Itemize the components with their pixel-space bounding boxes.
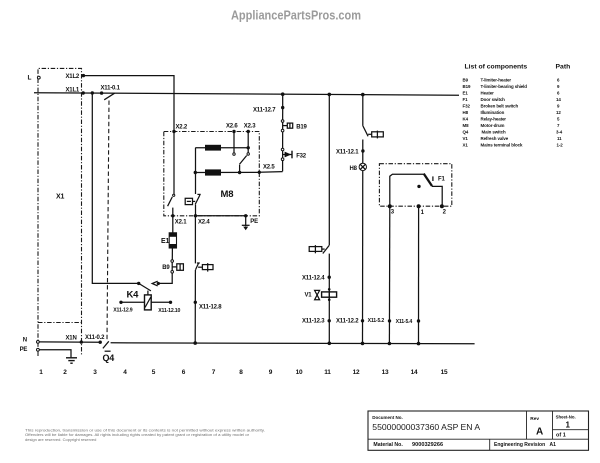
svg-text:T-limiter-heater: T-limiter-heater [481, 77, 512, 82]
svg-text:X11-12.10: X11-12.10 [158, 308, 180, 314]
svg-text:Path: Path [556, 63, 571, 70]
svg-text:1: 1 [39, 369, 43, 376]
svg-text:Illumination: Illumination [481, 110, 505, 115]
svg-text:14: 14 [411, 369, 418, 376]
svg-text:9: 9 [269, 369, 273, 376]
svg-text:X2.3: X2.3 [244, 124, 256, 130]
svg-text:AppliancePartsPros.com: AppliancePartsPros.com [231, 8, 361, 23]
svg-text:1: 1 [566, 420, 571, 429]
svg-text:14: 14 [556, 97, 561, 102]
svg-text:12: 12 [353, 369, 360, 376]
svg-text:X2.2: X2.2 [176, 124, 188, 130]
svg-text:X11-0.1: X11-0.1 [101, 85, 121, 91]
svg-text:Document No.: Document No. [372, 415, 403, 420]
svg-text:X11-12.7: X11-12.7 [253, 107, 276, 113]
svg-text:design are reserved. Copyright: design are reserved. Copyright reserved [25, 437, 96, 442]
svg-text:X11-5.2: X11-5.2 [368, 318, 385, 324]
svg-text:L: L [28, 75, 32, 82]
svg-text:X11-12.9: X11-12.9 [113, 308, 132, 314]
svg-text:A1: A1 [550, 442, 557, 448]
svg-text:X2.1: X2.1 [175, 219, 187, 225]
svg-text:55000000037360 ASP EN A: 55000000037360 ASP EN A [372, 422, 480, 432]
svg-text:X11-12.4: X11-12.4 [302, 276, 325, 282]
svg-text:X11-12.2: X11-12.2 [336, 318, 359, 324]
svg-text:Material No.: Material No. [373, 442, 403, 448]
svg-text:N: N [23, 338, 27, 344]
svg-text:Q4: Q4 [463, 129, 469, 134]
svg-text:V1: V1 [305, 293, 313, 299]
svg-text:PE: PE [250, 219, 258, 225]
svg-text:Q4: Q4 [103, 353, 115, 363]
svg-text:6: 6 [182, 369, 186, 376]
svg-text:T-limiter-bearing shield: T-limiter-bearing shield [481, 84, 528, 89]
svg-text:PE: PE [20, 347, 28, 353]
svg-text:11: 11 [324, 369, 331, 376]
svg-text:5: 5 [152, 369, 156, 376]
svg-text:X1L2: X1L2 [66, 74, 80, 80]
svg-text:4: 4 [123, 369, 127, 376]
svg-text:X1: X1 [56, 193, 64, 200]
svg-text:X11-12.3: X11-12.3 [302, 318, 325, 324]
svg-text:X1N: X1N [66, 335, 77, 341]
svg-text:H8: H8 [463, 110, 469, 115]
svg-text:9000329266: 9000329266 [412, 442, 443, 448]
svg-text:7: 7 [212, 369, 216, 376]
svg-text:3-4: 3-4 [556, 129, 563, 134]
svg-text:F1: F1 [438, 177, 445, 183]
svg-text:Rev: Rev [530, 416, 539, 422]
svg-text:8: 8 [239, 369, 243, 376]
svg-text:X1L1: X1L1 [66, 87, 80, 93]
svg-text:Heater: Heater [481, 90, 495, 95]
svg-text:B9: B9 [162, 265, 170, 271]
svg-text:K4: K4 [127, 290, 140, 301]
svg-text:F1: F1 [463, 97, 469, 102]
svg-text:12: 12 [556, 110, 561, 115]
svg-text:Broken belt switch: Broken belt switch [481, 103, 519, 108]
svg-text:Relay-heater: Relay-heater [481, 116, 507, 121]
svg-text:List of components: List of components [465, 63, 528, 70]
svg-text:V1: V1 [463, 136, 469, 141]
svg-text:X2.6: X2.6 [226, 124, 238, 130]
svg-text:E1: E1 [463, 90, 469, 95]
svg-text:B19: B19 [463, 84, 471, 89]
svg-text:X11-12.1: X11-12.1 [336, 149, 359, 155]
svg-text:Refresh valve: Refresh valve [481, 136, 509, 141]
svg-text:Door switch: Door switch [481, 97, 506, 102]
svg-text:A: A [536, 427, 543, 438]
svg-text:Mains terminal block: Mains terminal block [481, 142, 524, 147]
svg-text:M8: M8 [221, 189, 234, 200]
svg-text:11: 11 [557, 136, 562, 141]
svg-text:Main switch: Main switch [482, 129, 506, 134]
svg-text:X11-5.4: X11-5.4 [396, 319, 413, 325]
svg-text:X2.5: X2.5 [263, 164, 275, 170]
svg-text:Sheet-No.: Sheet-No. [556, 415, 576, 420]
svg-text:H8: H8 [350, 166, 358, 172]
svg-text:1-2: 1-2 [557, 142, 564, 147]
svg-text:X11-0.2: X11-0.2 [85, 335, 105, 341]
svg-text:2: 2 [63, 369, 67, 376]
svg-text:Motor-drum: Motor-drum [481, 123, 505, 128]
svg-text:3: 3 [93, 369, 97, 376]
svg-text:X2.4: X2.4 [198, 219, 210, 225]
svg-text:B19: B19 [296, 124, 307, 130]
svg-text:15: 15 [441, 369, 448, 376]
svg-text:X11-12.8: X11-12.8 [199, 304, 222, 310]
svg-text:F32: F32 [463, 103, 471, 108]
svg-text:M8: M8 [463, 123, 470, 128]
svg-text:F32: F32 [296, 153, 307, 159]
svg-text:B9: B9 [463, 77, 469, 82]
svg-text:13: 13 [382, 369, 389, 376]
svg-text:of 1: of 1 [556, 433, 566, 439]
svg-text:X1: X1 [463, 142, 469, 147]
svg-text:10: 10 [296, 369, 303, 376]
svg-text:E1: E1 [161, 238, 169, 245]
svg-text:K4: K4 [463, 116, 469, 121]
svg-text:Engineering Revision: Engineering Revision [494, 442, 545, 448]
